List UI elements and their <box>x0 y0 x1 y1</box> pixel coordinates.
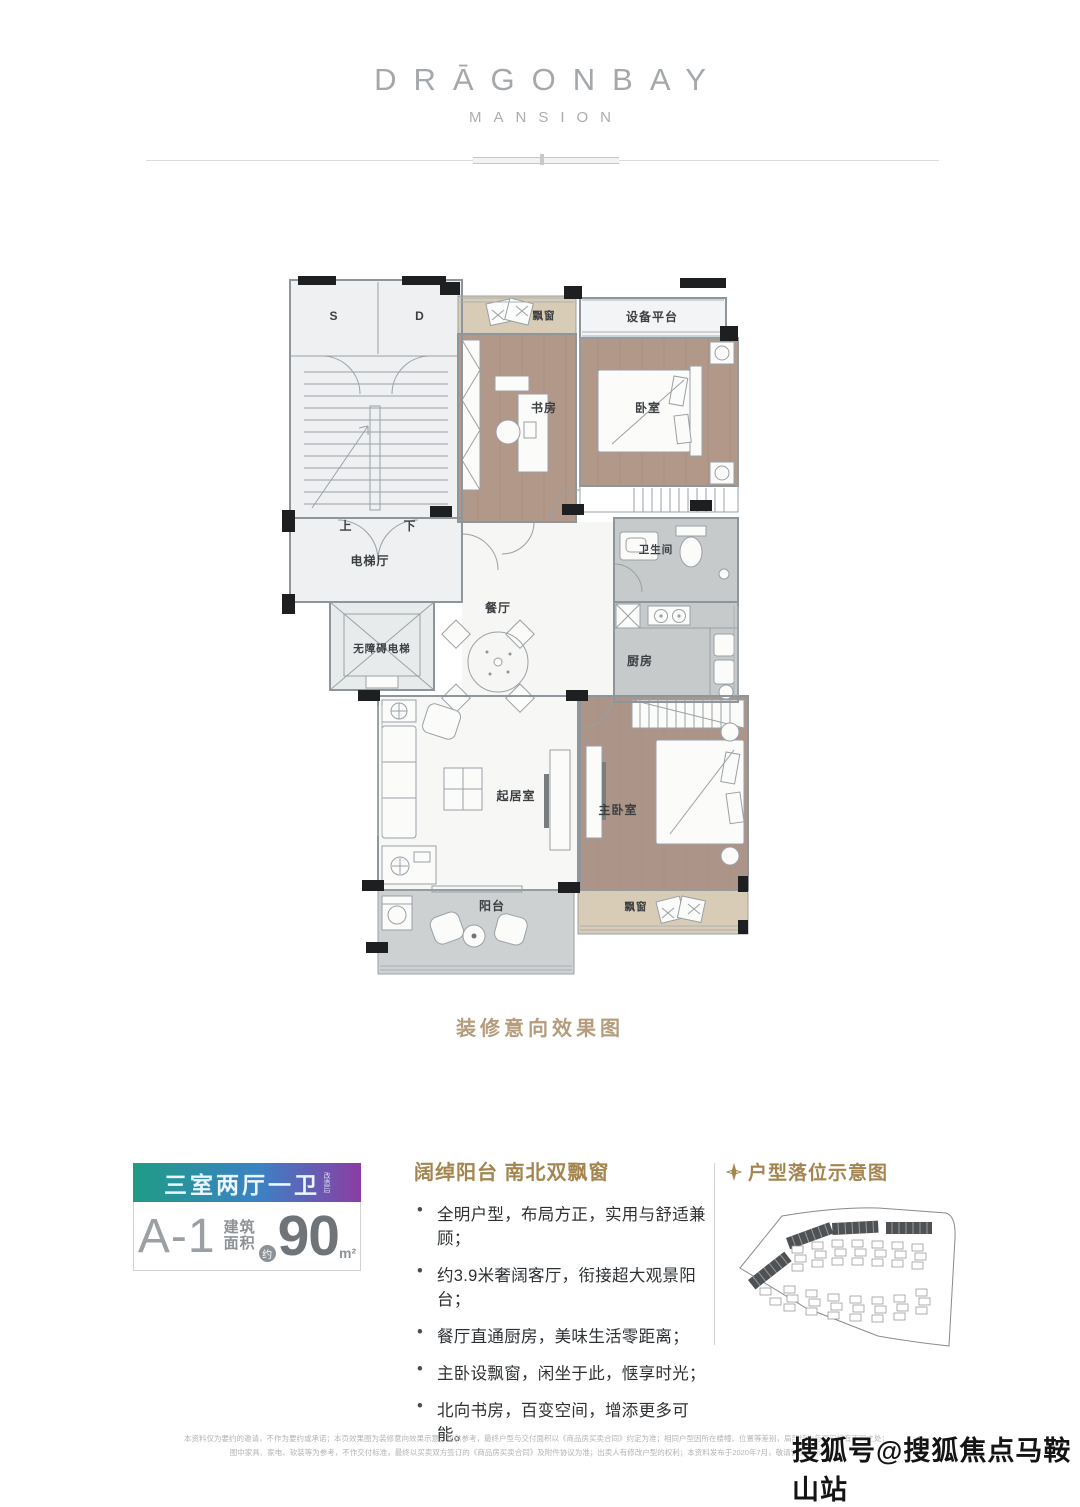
siteplan-map <box>726 1185 962 1367</box>
brand-subtitle: MANSION <box>0 109 1080 126</box>
features-title: 阔绰阳台 南北双飘窗 <box>414 1156 716 1185</box>
nightstand-lamp-icon <box>721 847 739 865</box>
header-divider-tick <box>540 154 544 165</box>
label-stair-d: D <box>415 309 425 323</box>
study-chair-icon <box>496 420 520 444</box>
label-dining: 餐厅 <box>485 600 511 615</box>
approx-circle: 约 <box>259 1245 276 1262</box>
header-divider-ornament <box>473 157 619 164</box>
page: { "brand": { "title": "DRĀGONBAY", "subt… <box>0 0 1080 1477</box>
unit-area-box: A-1 建筑 面积 约 90 m² <box>133 1202 361 1271</box>
features-list: 全明户型，布局方正，实用与舒适兼顾； 约3.9米奢阔客厅，衔接超大观景阳台； 餐… <box>414 1201 716 1445</box>
tv-icon <box>544 774 549 828</box>
sofa-icon <box>382 726 416 838</box>
sink-icon <box>714 634 734 656</box>
shower-icon <box>719 569 729 579</box>
label-elevator-hall: 电梯厅 <box>350 553 389 568</box>
label-stair-s: S <box>329 309 338 323</box>
watermark: 搜狐号@搜狐焦点马鞍山站 <box>792 1429 1080 1507</box>
label-up: 上 <box>339 518 352 533</box>
label-master-bedroom: 主卧室 <box>598 802 637 817</box>
feature-item: 约3.9米奢阔客厅，衔接超大观景阳台； <box>414 1262 716 1310</box>
tv-bench-icon <box>586 746 602 838</box>
floor-plan: S D 飘窗 设备平台 书房 卧室 上 下 电梯厅 无障碍电梯 餐厅 卫生间 厨… <box>282 276 764 980</box>
study-dresser-icon <box>495 376 529 391</box>
compass-icon <box>726 1162 742 1182</box>
label-down: 下 <box>403 519 416 533</box>
features-section: 阔绰阳台 南北双飘窗 全明户型，布局方正，实用与舒适兼顾； 约3.9米奢阔客厅，… <box>414 1156 716 1458</box>
label-balcony: 阳台 <box>479 898 505 913</box>
brand-title: DRĀGONBAY <box>0 62 1080 98</box>
area-word-top: 建筑 <box>224 1220 256 1236</box>
nightstand-lamp-icon <box>715 466 729 480</box>
label-bedroom: 卧室 <box>635 400 661 415</box>
siteplan-header: 户型落位示意图 <box>726 1158 966 1185</box>
feature-item: 全明户型，布局方正，实用与舒适兼顾； <box>414 1201 716 1249</box>
feature-item: 餐厅直通厨房，美味生活零距离； <box>414 1323 716 1347</box>
area-unit: m² <box>339 1245 356 1261</box>
layout-text: 三室两厅一卫 <box>164 1166 320 1200</box>
label-equipment-platform: 设备平台 <box>626 309 678 324</box>
layout-note: 改造后 <box>323 1172 330 1193</box>
nightstand-lamp-icon <box>721 723 739 741</box>
unit-code: A-1 <box>138 1209 216 1264</box>
siteplan-section: 户型落位示意图 <box>726 1158 966 1372</box>
disclaimer: 本资料仅为要约的邀请，不作为要约或承诺；本页效果图为装修意向效果示意，仅供参考，… <box>184 1432 889 1460</box>
disclaimer-line1: 本资料仅为要约的邀请，不作为要约或承诺；本页效果图为装修意向效果示意，仅供参考，… <box>184 1432 889 1446</box>
label-accessible-elevator: 无障碍电梯 <box>352 642 411 655</box>
label-study: 书房 <box>531 400 557 415</box>
area-word-bottom: 面积 <box>224 1236 256 1252</box>
disclaimer-line2: 图中家具、家电、软装等为参考，不作交付标准，最终以买卖双方签订的《商品房买卖合同… <box>184 1446 889 1460</box>
unit-badge: 三室两厅一卫 改造后 A-1 建筑 面积 约 90 m² <box>133 1163 361 1271</box>
label-bathroom: 卫生间 <box>639 543 674 556</box>
feature-item: 主卧设飘窗，闲坐于此，惬享时光； <box>414 1360 716 1384</box>
label-living: 起居室 <box>495 788 535 803</box>
label-kitchen: 厨房 <box>627 653 653 668</box>
plan-caption: 装修意向效果图 <box>0 1012 1080 1041</box>
toilet-icon <box>680 537 702 567</box>
tv-cabinet-icon <box>550 750 570 850</box>
area-value: 90 <box>278 1203 339 1269</box>
label-bay-window-top: 飘窗 <box>533 309 556 322</box>
brand-logo: DRĀGONBAY MANSION <box>0 62 1080 126</box>
label-bay-window-bottom: 飘窗 <box>625 900 648 913</box>
nightstand-lamp-icon <box>715 346 729 360</box>
layout-banner: 三室两厅一卫 改造后 <box>133 1163 361 1202</box>
section-divider <box>714 1163 715 1345</box>
area-words: 建筑 面积 <box>224 1220 256 1252</box>
siteplan-title: 户型落位示意图 <box>748 1158 888 1185</box>
